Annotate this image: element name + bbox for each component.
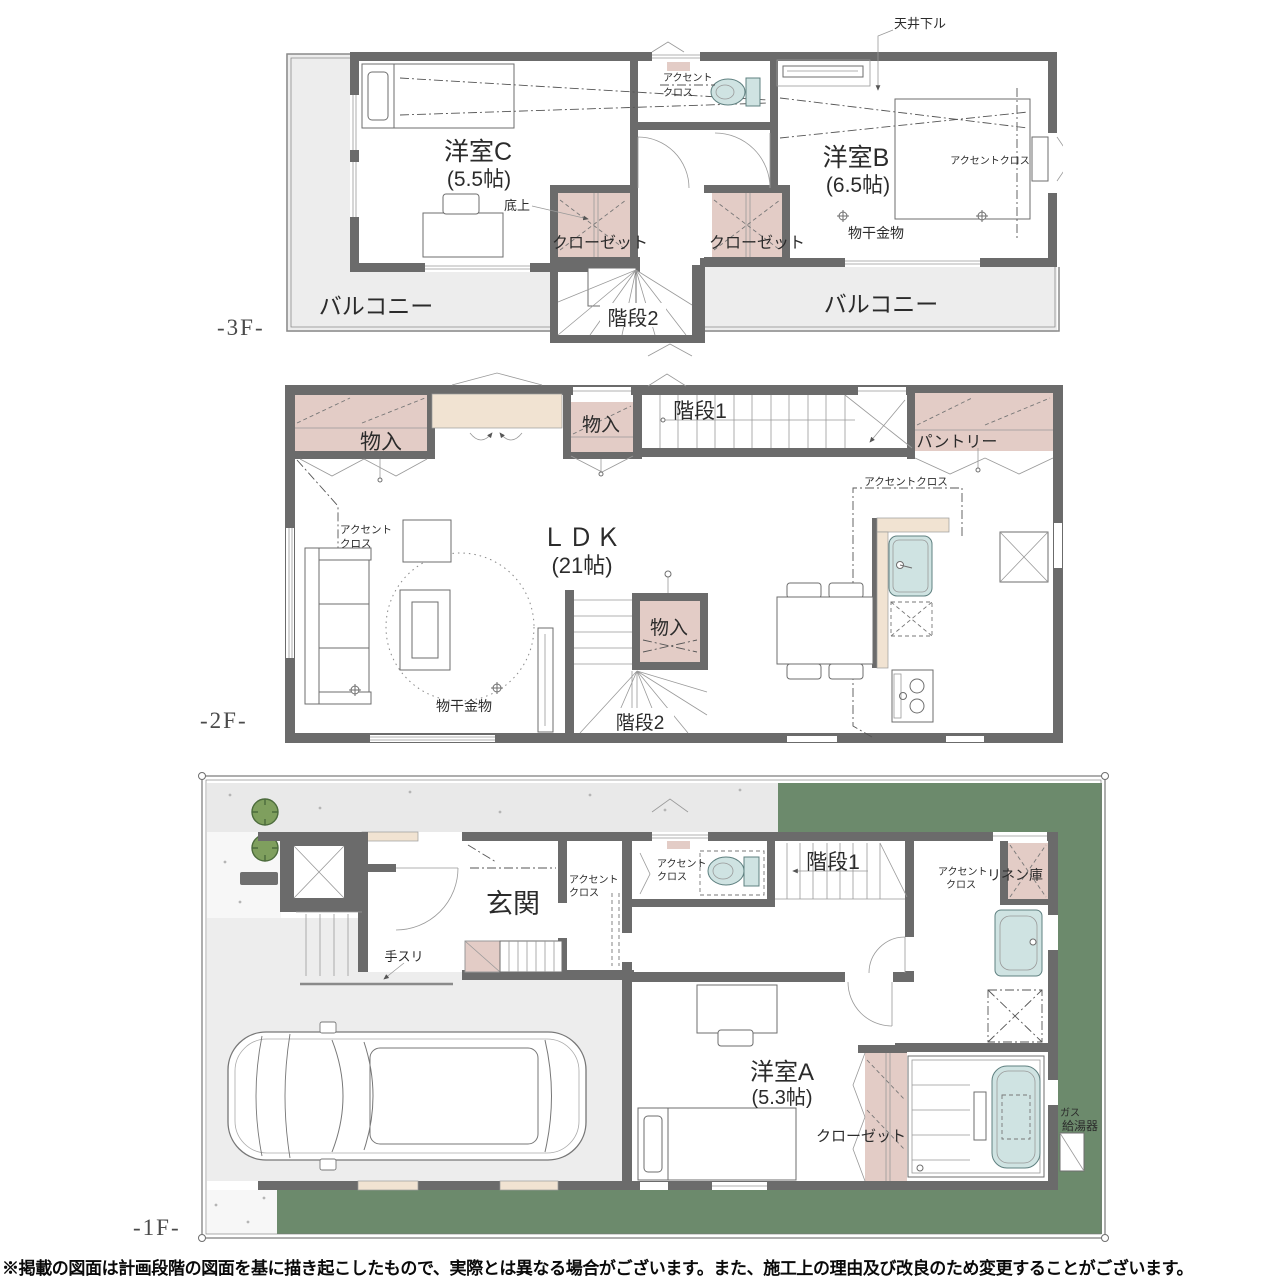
- bed-icon-room-c: [362, 64, 514, 128]
- side-table-icon: [403, 520, 451, 562]
- car-icon: [228, 1022, 586, 1170]
- label-closet-right-3f: クローゼット: [709, 234, 805, 252]
- kitchen-sink-icon: [889, 536, 932, 596]
- label-gas: ガス: [1060, 1107, 1080, 1119]
- label-accent-wash-line1: アクセント: [938, 866, 988, 878]
- room-label-yoshitsu-b: 洋室B: [823, 144, 890, 172]
- floor-label-2f: -2F-: [200, 708, 248, 734]
- vent-triangle-2f-right: [648, 374, 686, 386]
- room-size-ldk: (21帖): [551, 553, 612, 578]
- label-storage-mid: 物入: [650, 617, 688, 639]
- vent-triangle-2f-left: [452, 373, 542, 385]
- label-accent-genkan-line2: クロス: [569, 887, 599, 899]
- label-closet-1f: クローゼット: [816, 1128, 906, 1145]
- label-stairs2-3f: 階段2: [607, 307, 658, 330]
- bed-icon-room-a: [638, 1108, 796, 1180]
- vent-triangle-top: [652, 42, 684, 52]
- bathtub-icon: [992, 1066, 1040, 1168]
- label-accent-3f-line2: クロス: [663, 87, 693, 99]
- vent-triangle-bottom: [648, 344, 692, 356]
- label-floor-raised: 底上: [504, 198, 530, 213]
- label-handrail: 手スリ: [384, 949, 423, 964]
- label-accent-cloth-kitchen: アクセントクロス: [864, 476, 947, 488]
- label-accent-3f-line1: アクセント: [663, 72, 713, 84]
- label-ceiling-drop: 天井下ル: [894, 16, 946, 31]
- label-pantry: パントリー: [917, 434, 998, 451]
- label-accent-genkan-line1: アクセント: [569, 874, 619, 886]
- floor-label-1f: -1F-: [133, 1215, 181, 1241]
- label-accent-ldk-line2: クロス: [340, 538, 372, 550]
- water-heater-icon: [1060, 1133, 1084, 1171]
- room-label-ldk: ＬＤＫ: [541, 524, 622, 552]
- floor-plan-2f: 物入 物入 階段1 パントリー アクセントクロス アクセント クロス ＬＤＫ (…: [283, 370, 1065, 746]
- disclaimer-text: ※掲載の図面は計画段階の図面を基に描き起こしたもので、実際とは異なる場合がござい…: [2, 1254, 1280, 1279]
- room-label-genkan: 玄関: [486, 889, 540, 919]
- label-balcony-right: バルコニー: [824, 291, 939, 317]
- floor-label-3f: -3F-: [217, 315, 265, 341]
- label-storage-top: 物入: [582, 414, 620, 436]
- label-monohoshi-2f: 物干金物: [436, 698, 492, 714]
- dresser-icon-room-b: [777, 60, 870, 86]
- label-balcony-left: バルコニー: [319, 293, 434, 319]
- kitchen-2f: [877, 518, 1048, 722]
- desk-icon-room-c: [423, 194, 503, 257]
- toilet-icon-3f: [660, 62, 760, 106]
- washbasin-icon: [995, 910, 1042, 976]
- label-water-heater: 給湯器: [1062, 1119, 1098, 1133]
- floor-plan-1f: 玄関 アクセント クロス アクセント クロス 階段1 アクセント クロス リネン…: [198, 772, 1110, 1244]
- counter-top-2f: [432, 394, 562, 428]
- genkan-step: [465, 941, 562, 972]
- dining-table-icon: [777, 583, 873, 679]
- room-size-yoshitsu-c: (5.5帖): [447, 168, 511, 191]
- label-linen: リネン庫: [987, 867, 1043, 883]
- label-accent-ldk-line1: アクセント: [340, 524, 392, 536]
- door-arcs-3f: [638, 133, 770, 188]
- low-table-icon: [400, 590, 450, 670]
- label-stairs1-1f: 階段1: [806, 851, 860, 874]
- room-label-yoshitsu-c: 洋室C: [444, 138, 512, 166]
- door-swing-arrows: [470, 433, 522, 440]
- hook-marks-2f: [349, 682, 503, 696]
- label-stairs1-2f: 階段1: [673, 400, 727, 423]
- room-label-yoshitsu-a: 洋室A: [750, 1059, 814, 1086]
- tv-board-icon: [538, 628, 553, 732]
- bay-window-room-b: [1032, 137, 1063, 181]
- label-accent-wash-line2: クロス: [946, 879, 976, 891]
- label-closet-left-3f: クローゼット: [552, 234, 648, 252]
- elevator-shaft: [280, 832, 358, 912]
- bench-icon: [240, 872, 278, 885]
- label-accent-toilet-line2: クロス: [657, 871, 687, 883]
- label-monohoshi-3f: 物干金物: [848, 225, 904, 241]
- room-size-yoshitsu-b: (6.5帖): [826, 174, 890, 197]
- refrigerator-icon: [1000, 532, 1048, 582]
- sofa-icon: [305, 548, 371, 704]
- floor-plan-page: 天井下ル アクセント クロス 洋室C (5.5帖) 底上 クローゼット クローゼ…: [0, 0, 1280, 1280]
- label-stairs2-2f: 階段2: [616, 712, 665, 734]
- label-accent-cloth-room-b: アクセントクロス: [950, 155, 1030, 167]
- room-size-yoshitsu-a: (5.3帖): [751, 1086, 812, 1109]
- label-storage-tl: 物入: [360, 431, 402, 454]
- stove-icon: [892, 670, 933, 722]
- label-accent-toilet-line1: アクセント: [657, 858, 707, 870]
- floor-plan-3f: 天井下ル アクセント クロス 洋室C (5.5帖) 底上 クローゼット クローゼ…: [283, 10, 1063, 358]
